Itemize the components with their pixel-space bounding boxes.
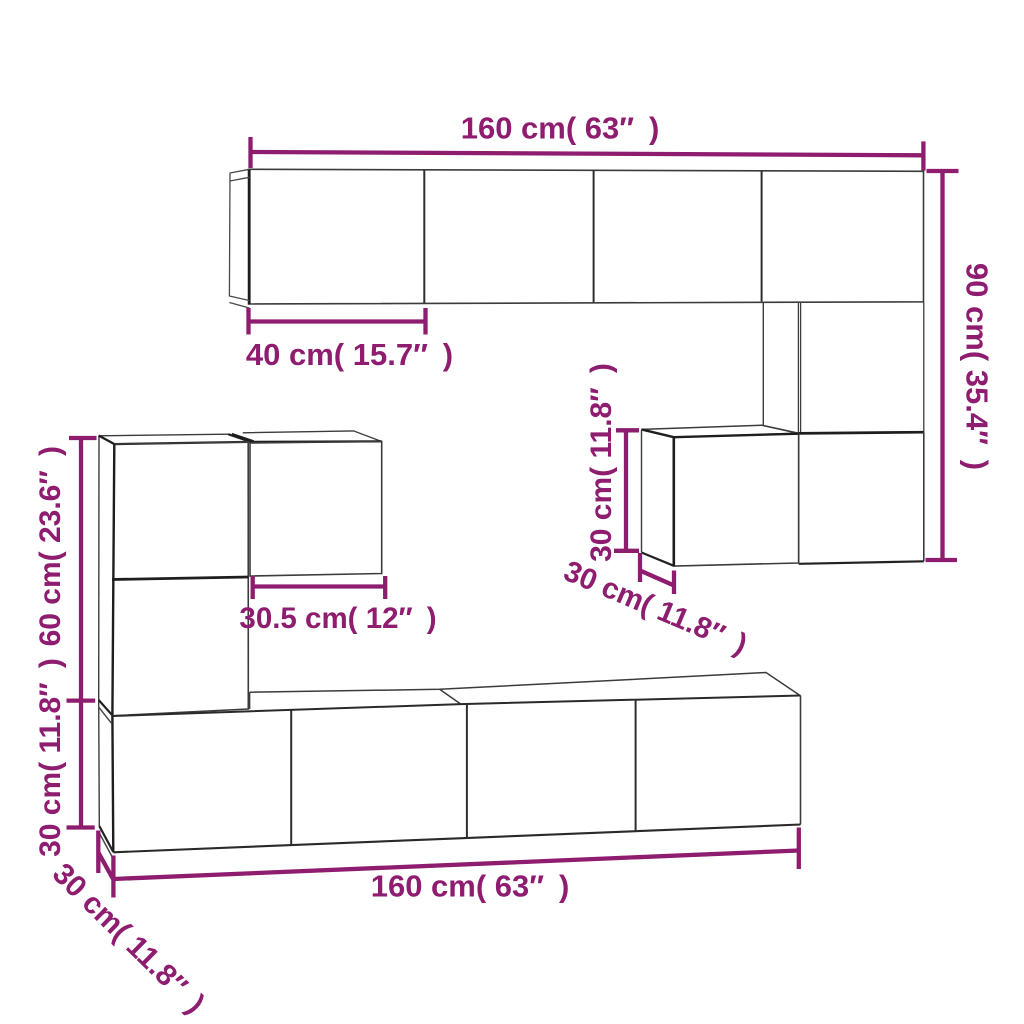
svg-text:40 cm( 15.7″ ): 40 cm( 15.7″ ): [246, 337, 453, 372]
svg-text:160 cm( 63″ ): 160 cm( 63″ ): [371, 869, 570, 904]
svg-text:90 cm( 35.4″ ): 90 cm( 35.4″ ): [960, 263, 995, 470]
svg-text:30.5 cm( 12″ ): 30.5 cm( 12″ ): [239, 602, 436, 635]
svg-text:160 cm( 63″ ): 160 cm( 63″ ): [461, 111, 660, 146]
svg-text:60 cm( 23.6″ ): 60 cm( 23.6″ ): [34, 446, 67, 646]
svg-text:30 cm( 11.8″ ): 30 cm( 11.8″ ): [34, 658, 67, 857]
svg-text:30 cm( 11.8″ ): 30 cm( 11.8″ ): [585, 363, 618, 562]
